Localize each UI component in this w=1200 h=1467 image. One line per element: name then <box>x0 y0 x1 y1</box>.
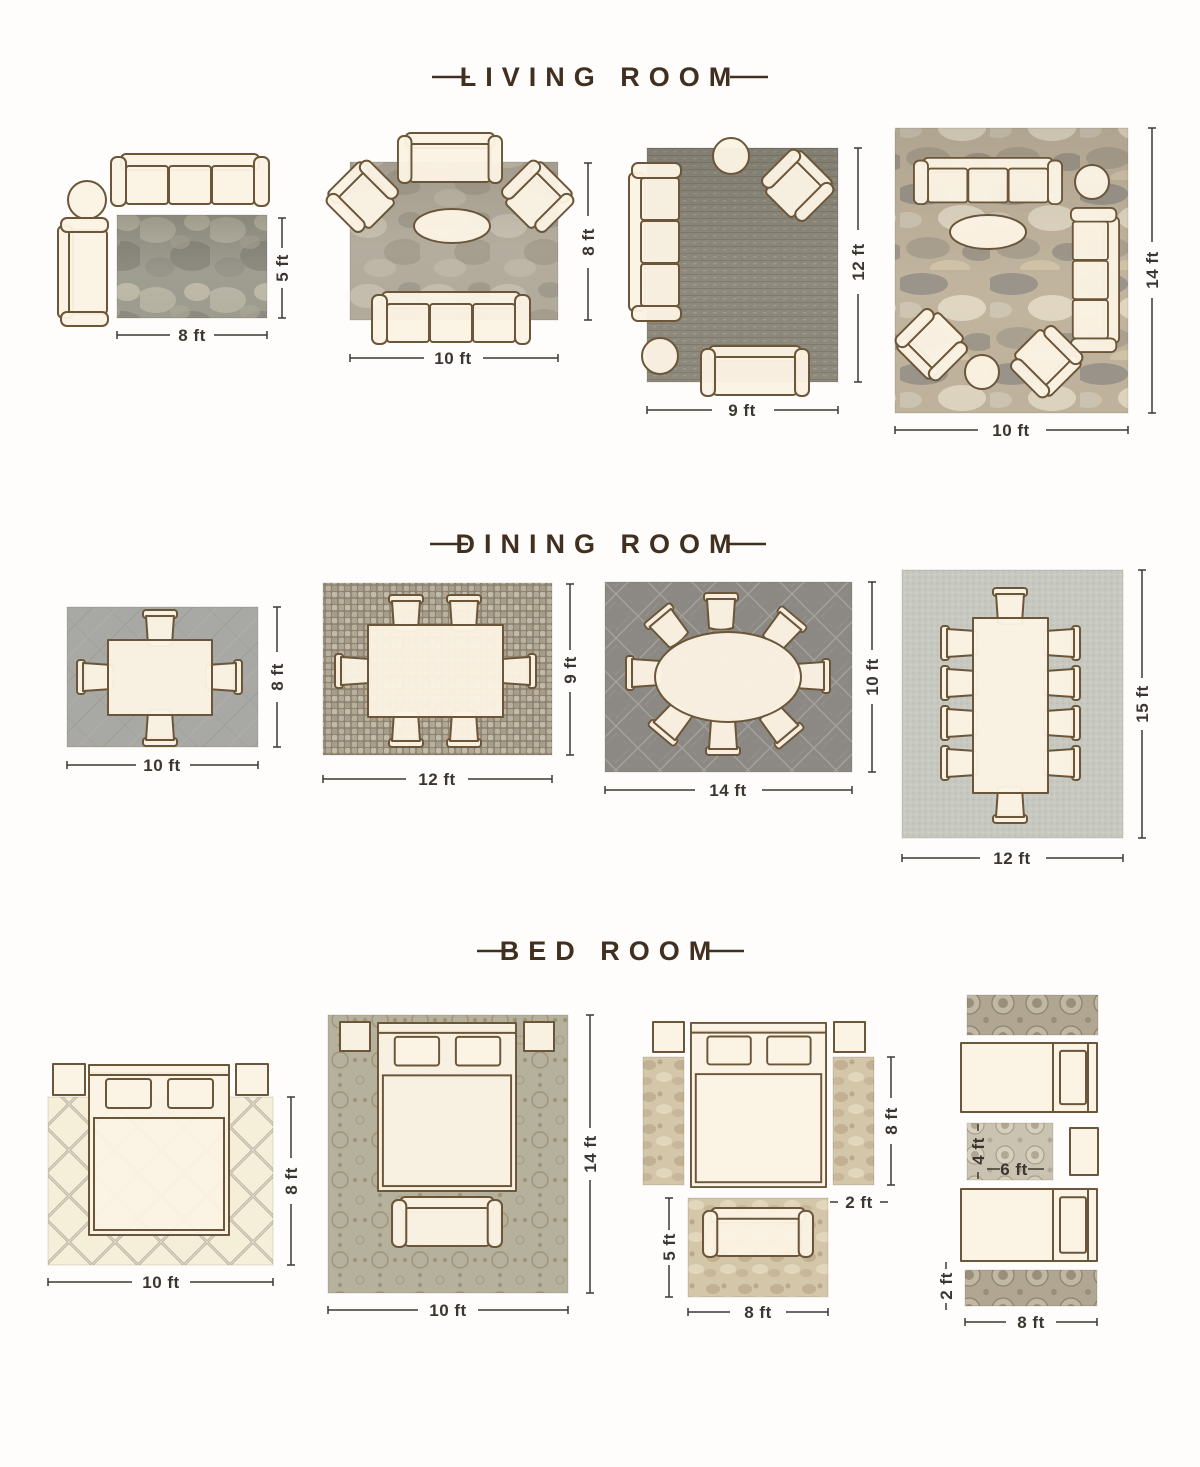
dining-room-layout-2: 9 ft 12 ft <box>323 583 580 789</box>
nightstand-icon <box>53 1064 85 1095</box>
sofa-icon <box>372 292 530 344</box>
height-dimension: 10 ft <box>863 582 882 772</box>
runner-rug-top <box>967 995 1098 1035</box>
width-dimension: 10 ft <box>895 421 1128 440</box>
living-room-layout-4: 14 ft 10 ft <box>891 128 1162 440</box>
oval-dining-table-icon <box>655 632 801 722</box>
dining-chair-icon <box>335 654 372 688</box>
bench-icon <box>703 1208 813 1257</box>
dining-chair-icon <box>499 654 536 688</box>
height-dimension: 14 ft <box>1143 128 1162 413</box>
round-side-table-icon <box>642 338 678 374</box>
runner-height-label: 2 ft <box>937 1272 956 1300</box>
loveseat-icon <box>58 218 108 326</box>
rug-height-label: 14 ft <box>1143 251 1162 288</box>
rug-width-label: 10 ft <box>429 1301 466 1320</box>
runner-rug-bottom <box>965 1270 1097 1306</box>
guide-canvas: LIVING ROOM 5 ft 8 ft 8 ft 10 ft <box>0 0 1200 1467</box>
foot-rug-height-dimension: 5 ft <box>660 1198 679 1297</box>
loveseat-icon <box>398 133 502 183</box>
living-room-layout-2: 8 ft 10 ft <box>322 133 598 368</box>
rug-shading <box>117 215 267 318</box>
nightstand-icon <box>236 1064 268 1095</box>
rug-height-label: 10 ft <box>863 658 882 695</box>
sofa-icon <box>914 158 1062 204</box>
bed-room-title: BED ROOM <box>500 936 721 966</box>
height-dimension: 14 ft <box>581 1015 600 1293</box>
runner-rug-left <box>643 1057 684 1185</box>
rug-width-label: 10 ft <box>142 1273 179 1292</box>
rug-width-label: 12 ft <box>993 849 1030 868</box>
round-side-table-icon <box>1075 165 1109 199</box>
sofa-icon <box>111 154 269 206</box>
rug-height-label: 14 ft <box>581 1135 600 1172</box>
oval-coffee-table-icon <box>950 215 1026 249</box>
height-dimension: 5 ft <box>273 218 292 318</box>
rug-width-label: 9 ft <box>728 401 756 420</box>
rug-width-label: 10 ft <box>143 756 180 775</box>
dining-chair-icon <box>704 593 738 630</box>
width-dimension: 10 ft <box>67 756 258 775</box>
rug-size-guide: LIVING ROOM 5 ft 8 ft 8 ft 10 ft <box>0 0 1200 1467</box>
bed-area-width-dimension: 8 ft <box>965 1313 1097 1332</box>
nightstand-icon <box>1070 1128 1098 1175</box>
dining-table-icon <box>108 640 212 715</box>
bed-room-layout-4: 4 ft 6 ft 2 ft 8 ft <box>937 995 1098 1332</box>
bed-icon <box>378 1023 516 1191</box>
rug-width-label: 12 ft <box>418 770 455 789</box>
round-side-table-icon <box>965 355 999 389</box>
rug-height-label: 12 ft <box>849 243 868 280</box>
twin-bed-icon <box>961 1189 1097 1261</box>
foot-rug-width-dimension: 8 ft <box>688 1303 828 1322</box>
width-dimension: 10 ft <box>350 349 558 368</box>
height-dimension: 8 ft <box>268 607 287 747</box>
runner-height-dimension: 2 ft <box>937 1262 956 1310</box>
living-room-layout-3: 12 ft 9 ft <box>629 138 868 420</box>
rug-width-label: 10 ft <box>434 349 471 368</box>
bench-icon <box>392 1197 502 1247</box>
nightstand-icon <box>524 1022 554 1051</box>
height-dimension: 9 ft <box>561 584 580 755</box>
rug-height-label: 8 ft <box>268 663 287 691</box>
dining-room-title: DINING ROOM <box>456 529 741 559</box>
height-dimension: 15 ft <box>1133 570 1152 838</box>
round-side-table-icon <box>68 181 106 219</box>
bed-room-layout-1: 8 ft 10 ft <box>48 1064 301 1292</box>
rug-height-label: 8 ft <box>579 228 598 256</box>
runner-height-label: 8 ft <box>882 1107 901 1135</box>
runner-height-dimension: 8 ft <box>882 1057 901 1185</box>
bed-icon <box>691 1023 826 1187</box>
dining-room-layout-4: 15 ft 12 ft <box>902 570 1152 868</box>
dining-room-layout-3: 10 ft 14 ft <box>605 582 882 800</box>
sofa-icon <box>629 163 681 321</box>
dining-chair-icon <box>706 718 740 755</box>
bed-room-layout-3: 8 ft 2 ft 5 ft 8 ft <box>643 1022 901 1322</box>
rug-height-label: 8 ft <box>282 1167 301 1195</box>
rug-height-label: 15 ft <box>1133 685 1152 722</box>
dining-table-icon <box>973 618 1048 793</box>
section-title-bed-room: BED ROOM <box>477 936 744 966</box>
rug-width-label: 10 ft <box>992 421 1029 440</box>
rug-width-label: 8 ft <box>178 326 206 345</box>
rug-width-label: 14 ft <box>709 781 746 800</box>
loveseat-icon <box>701 346 809 396</box>
bed-area-width-label: 8 ft <box>1017 1313 1045 1332</box>
rug-height-label: 9 ft <box>561 656 580 684</box>
height-dimension: 12 ft <box>849 148 868 382</box>
runner-rug-right <box>833 1057 874 1185</box>
runner-width-dimension: 2 ft <box>830 1193 888 1212</box>
width-dimension: 12 ft <box>323 770 552 789</box>
section-title-living-room: LIVING ROOM <box>432 62 768 92</box>
living-room-layout-1: 5 ft 8 ft <box>58 154 292 345</box>
sofa-icon <box>1071 208 1119 352</box>
nightstand-icon <box>834 1022 865 1052</box>
nightstand-icon <box>340 1022 370 1051</box>
height-dimension: 8 ft <box>282 1097 301 1265</box>
center-rug-height-label: 4 ft <box>969 1137 988 1165</box>
width-dimension: 9 ft <box>647 401 838 420</box>
foot-rug-width-label: 8 ft <box>744 1303 772 1322</box>
width-dimension: 14 ft <box>605 781 852 800</box>
section-title-dining-room: DINING ROOM <box>430 529 766 559</box>
nightstand-icon <box>653 1022 684 1052</box>
bed-icon <box>89 1065 229 1235</box>
width-dimension: 10 ft <box>328 1301 568 1320</box>
width-dimension: 12 ft <box>902 849 1123 868</box>
dining-table-icon <box>368 625 503 717</box>
rug-height-label: 5 ft <box>273 254 292 282</box>
width-dimension: 8 ft <box>117 326 267 345</box>
dining-room-layout-1: 8 ft 10 ft <box>67 607 287 775</box>
oval-coffee-table-icon <box>414 209 490 243</box>
height-dimension: 8 ft <box>579 163 598 320</box>
runner-width-label: 2 ft <box>845 1193 873 1212</box>
living-room-title: LIVING ROOM <box>460 62 741 92</box>
center-rug-width-label: 6 ft <box>1000 1160 1028 1179</box>
foot-rug-height-label: 5 ft <box>660 1233 679 1261</box>
round-side-table-icon <box>713 138 749 174</box>
width-dimension: 10 ft <box>48 1273 273 1292</box>
bed-room-layout-2: 14 ft 10 ft <box>328 1015 600 1320</box>
twin-bed-icon <box>961 1043 1097 1112</box>
